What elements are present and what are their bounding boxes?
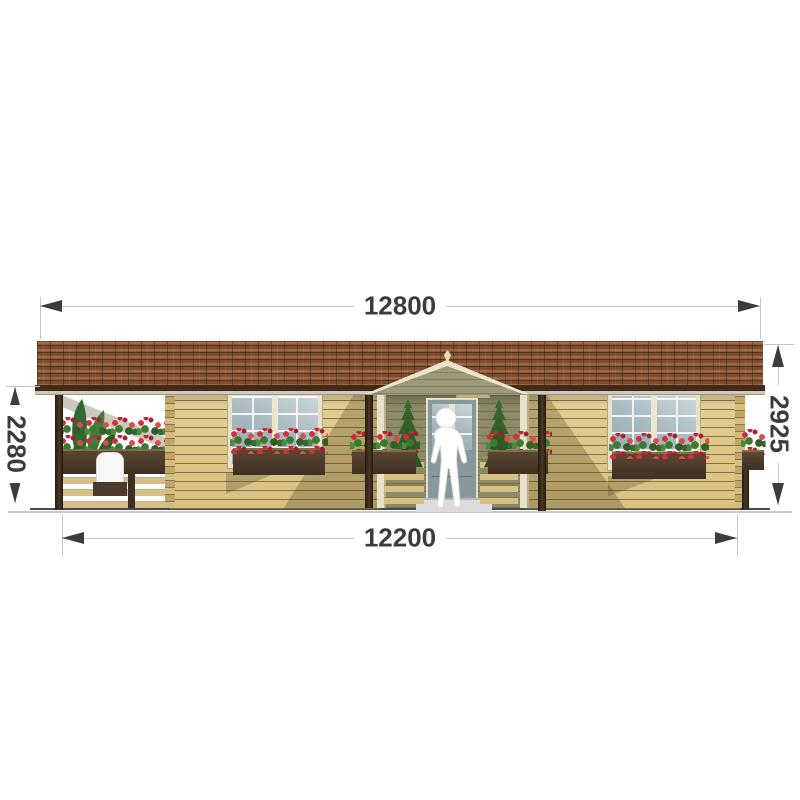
arrow-right-icon — [715, 532, 737, 544]
dim-extension-line — [760, 297, 761, 339]
roof — [37, 341, 763, 386]
window-left — [224, 388, 328, 484]
downspout-right — [538, 394, 546, 511]
dim-extension-line — [737, 514, 738, 556]
terrace — [55, 388, 173, 510]
person-silhouette — [419, 407, 475, 510]
terrace-fence-leg — [128, 472, 135, 508]
downspout-left — [365, 394, 373, 508]
window-flowers — [609, 433, 709, 459]
terrace-chair-base — [93, 482, 127, 496]
downspout-corner-right — [742, 465, 749, 510]
ground-extension-line — [8, 511, 792, 513]
arrow-left-icon — [62, 532, 84, 544]
terrace-chair — [96, 452, 124, 486]
arrow-down-icon — [9, 481, 21, 503]
terrace-post — [55, 392, 63, 510]
porch-planter-left — [352, 450, 416, 474]
arrow-down-icon — [772, 483, 784, 505]
dim-label-base-width: 12200 — [354, 524, 446, 551]
corner-logs-left — [165, 395, 175, 508]
arrow-left-icon — [40, 300, 62, 312]
dim-label-overall-width: 12800 — [354, 292, 446, 319]
window-right — [604, 388, 708, 488]
side-flower-box-right — [742, 450, 764, 470]
arrow-right-icon — [738, 300, 760, 312]
elevation-drawing: 12800 12200 2280 2925 — [0, 0, 800, 800]
dim-label-eave-height: 2280 — [2, 405, 29, 483]
window-flowers — [230, 428, 328, 454]
arrow-up-icon — [772, 345, 784, 367]
terrace-flowers — [59, 417, 169, 450]
dim-label-ridge-height: 2925 — [765, 385, 792, 463]
